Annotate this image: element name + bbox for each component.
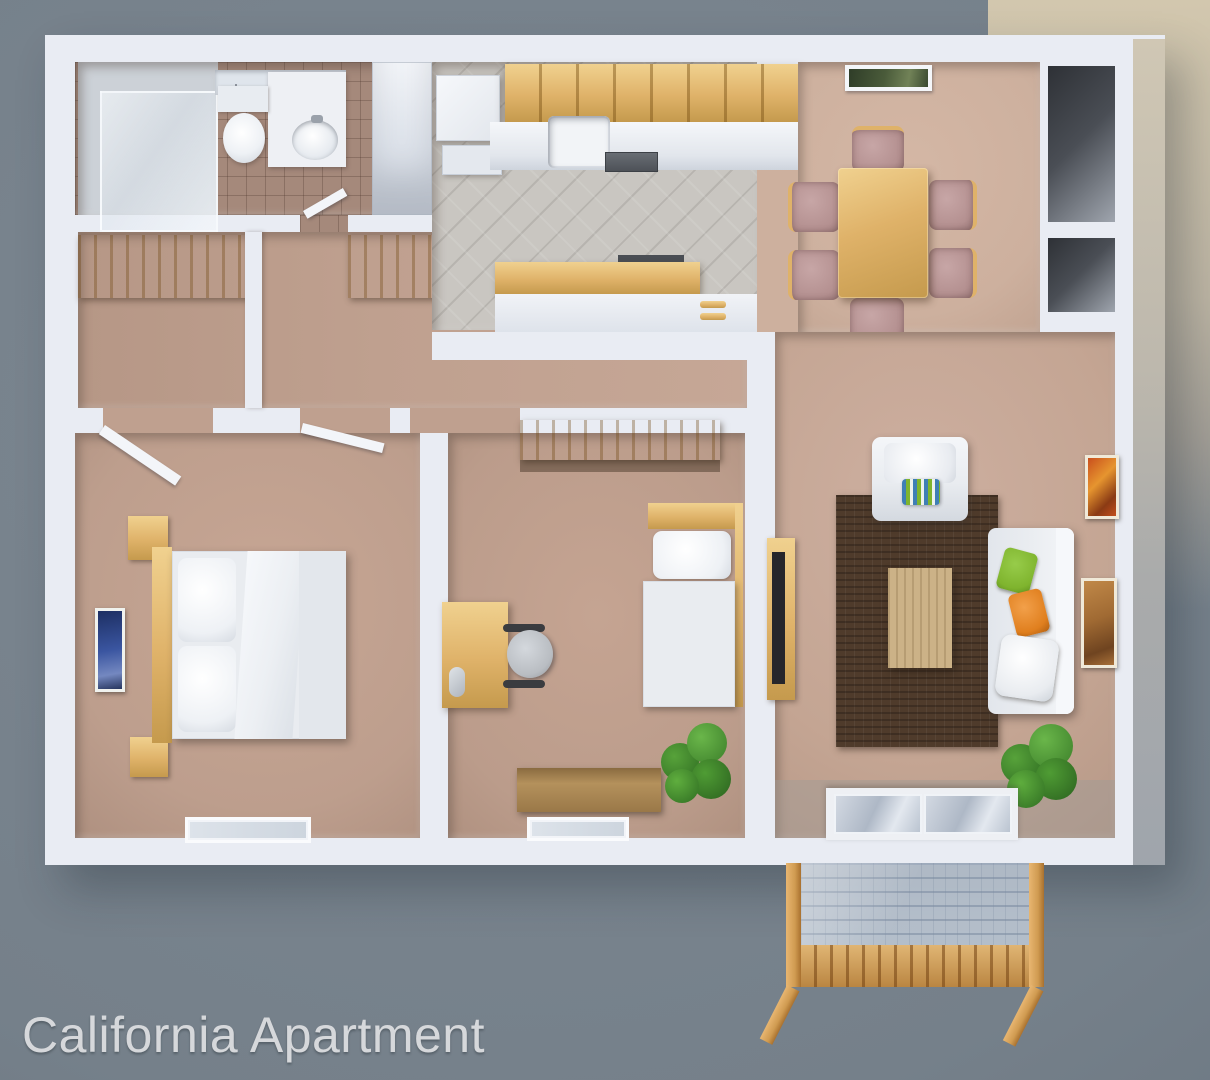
storage-chest — [517, 768, 661, 812]
dining-wall-picture — [845, 65, 932, 91]
twin-bed-headboard — [648, 503, 738, 529]
dining-chair — [788, 182, 840, 232]
kitchen-upper-cabinets — [505, 64, 802, 122]
sliding-door-glass — [834, 794, 922, 834]
tv-screen — [772, 552, 785, 684]
bedroom2-window — [527, 817, 629, 841]
bed-duvet-edge — [299, 551, 346, 739]
plant-leaf — [687, 723, 727, 763]
balcony-post — [1029, 863, 1044, 987]
armchair-back-cushion — [884, 443, 956, 483]
balcony-post — [786, 863, 801, 987]
striped-accent-pillow — [902, 479, 940, 505]
vanity-sink — [292, 120, 338, 160]
wall-art-orange — [1085, 455, 1119, 519]
wall-art-autumn — [1081, 578, 1117, 668]
drawer-handle — [700, 301, 726, 308]
pantry-cabinets — [372, 62, 432, 215]
twin-bed-pillow — [653, 531, 731, 579]
closet-recess — [1048, 66, 1115, 222]
desk-lamp — [449, 667, 465, 697]
abstract-art — [1088, 458, 1116, 516]
picture-landscape-art — [849, 69, 928, 87]
master-door-opening — [103, 408, 213, 433]
scene-background: California Apartment — [0, 0, 1210, 1080]
plant-leaf — [665, 769, 699, 803]
peninsula-counter-top — [495, 262, 700, 294]
coffee-table — [888, 568, 952, 668]
dining-chair — [788, 250, 840, 300]
twin-bed-rail — [735, 503, 743, 707]
dining-chair — [929, 248, 977, 298]
dining-chair — [852, 126, 904, 172]
wall-art-blue — [95, 608, 125, 692]
blue-art — [98, 611, 122, 689]
bed-headboard — [152, 547, 172, 743]
balcony-leg — [1003, 985, 1044, 1047]
bedroom2-door-opening — [410, 408, 520, 433]
window-glass — [190, 822, 306, 838]
closet-shadow — [520, 460, 720, 472]
nightstand — [130, 737, 168, 777]
sink-faucet — [311, 115, 323, 123]
autumn-art — [1084, 581, 1114, 665]
dining-chair — [929, 180, 977, 230]
master-window — [185, 817, 311, 843]
drawer-handle — [700, 313, 726, 320]
office-chair-arm — [503, 680, 545, 688]
balcony-floor-slats — [801, 945, 1029, 987]
toilet-tank — [218, 86, 268, 112]
shower-glass — [100, 91, 218, 232]
potted-plant — [657, 719, 733, 811]
closet-recess — [1048, 238, 1115, 312]
kitchen-sink — [548, 116, 610, 168]
sofa-pillow-white — [994, 633, 1060, 702]
sliding-door-glass — [924, 794, 1012, 834]
dining-table — [838, 168, 928, 298]
bed-pillow — [178, 646, 236, 732]
bedroom2-closet-shelf — [520, 420, 720, 460]
kitchen-lower-wall — [432, 332, 775, 360]
sofa-backrest — [1056, 528, 1074, 714]
toilet-bowl — [223, 113, 265, 163]
balcony — [780, 860, 1050, 1060]
floor-plan — [45, 35, 1165, 865]
office-chair-seat — [507, 630, 553, 678]
stove — [605, 152, 658, 172]
right-wall-exterior-face — [1133, 39, 1165, 865]
floor-plan-title: California Apartment — [22, 1006, 485, 1064]
balcony-leg — [760, 985, 800, 1045]
twin-bed-duvet — [643, 581, 735, 707]
closet-divider-wall — [245, 232, 262, 408]
window-glass — [532, 822, 624, 836]
hall-closet-shelf — [78, 235, 250, 298]
peninsula-base — [495, 294, 802, 334]
bed-pillow — [178, 558, 236, 642]
